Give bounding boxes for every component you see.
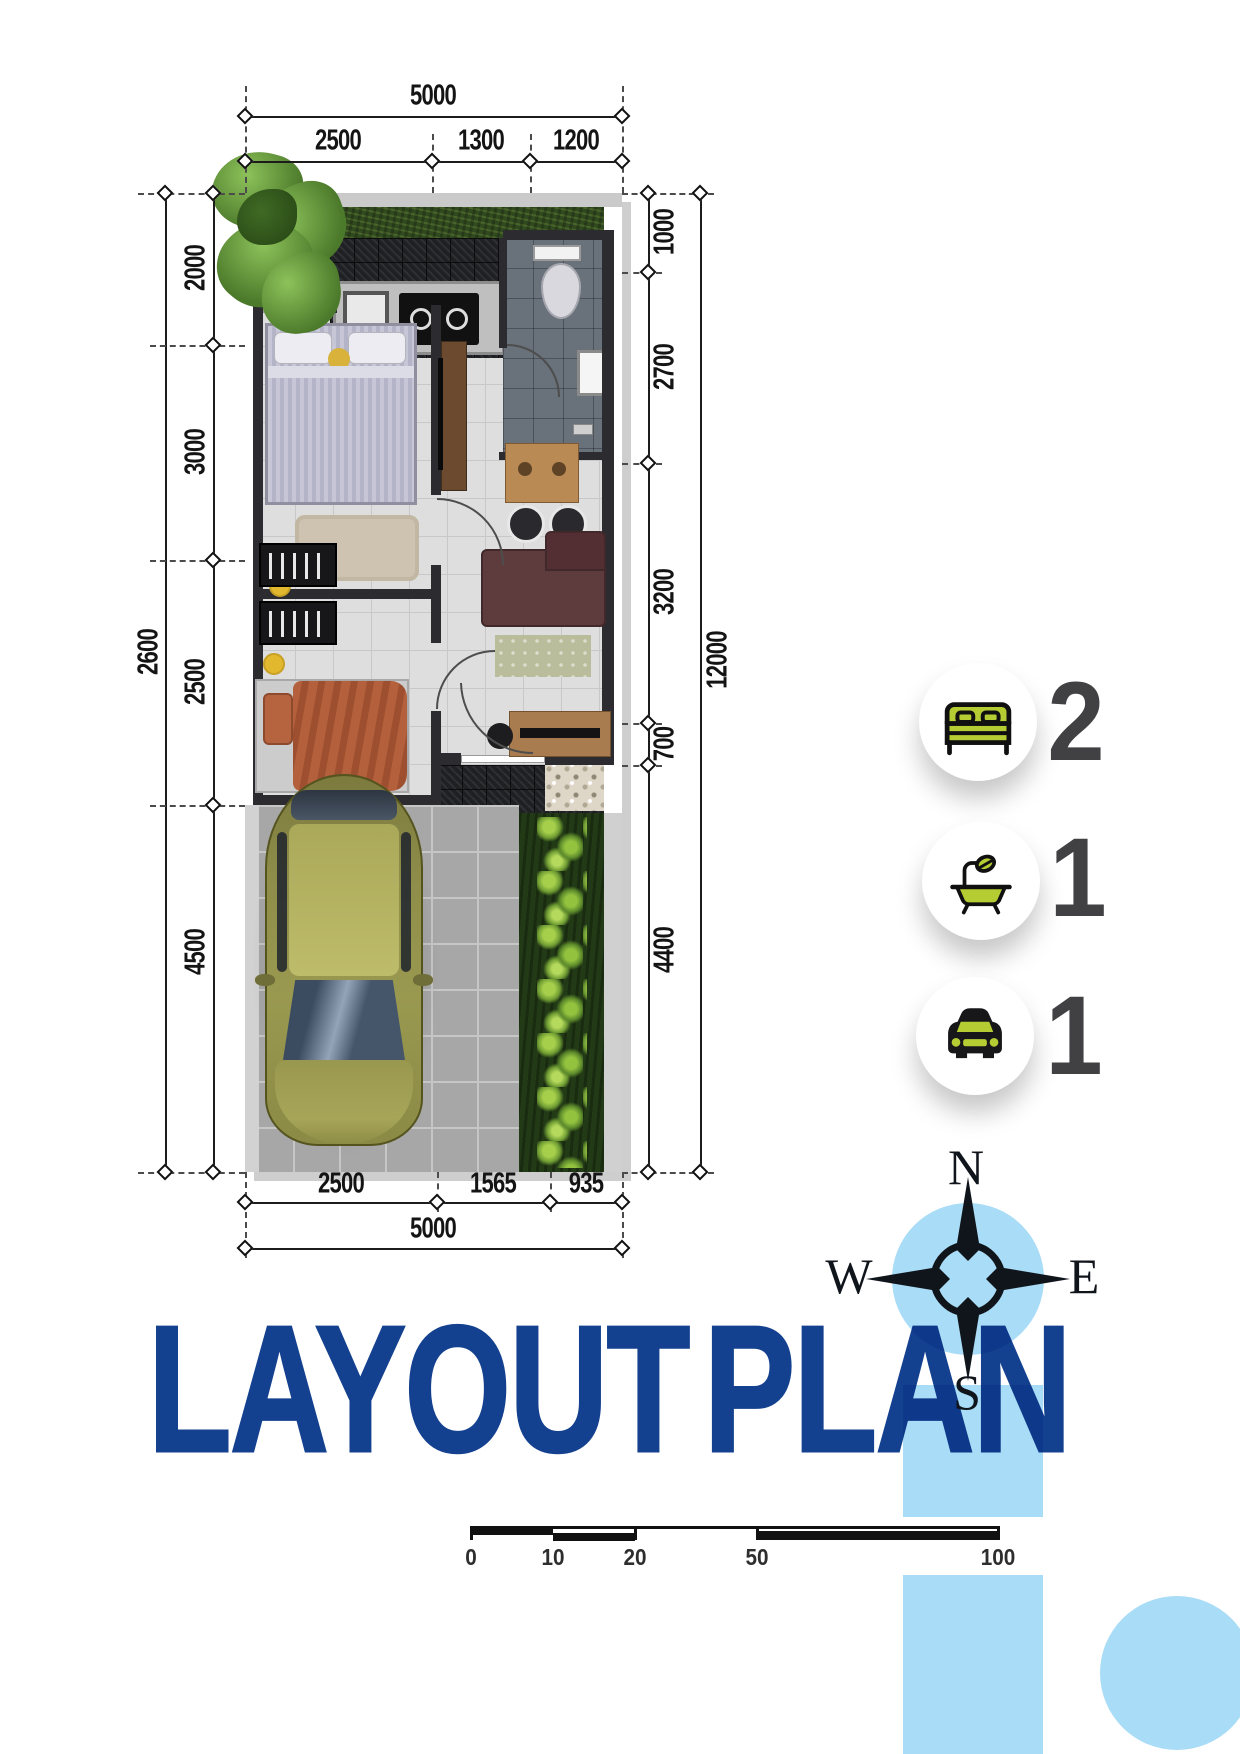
- dim-marker: [614, 1240, 631, 1257]
- dim-line: [648, 193, 650, 1172]
- car-windshield: [283, 980, 405, 1060]
- dim-top-seg2: 1300: [458, 125, 504, 158]
- dim-marker: [205, 797, 222, 814]
- dim-right-seg4: 700: [649, 727, 682, 761]
- dim-top-seg1: 2500: [315, 125, 361, 158]
- title-word-layout: LAYOUT: [148, 1300, 689, 1480]
- deco-circle-bottom-right: [1100, 1596, 1240, 1750]
- dim-right-outer: 12000: [702, 631, 735, 688]
- dim-marker: [237, 1240, 254, 1257]
- dim-bottom-seg2: 1565: [470, 1168, 516, 1201]
- scale-label-50: 50: [745, 1544, 768, 1571]
- car-top-view: [253, 768, 437, 1158]
- dim-marker: [692, 1164, 709, 1181]
- dim-line: [245, 116, 622, 118]
- dim-marker: [640, 1164, 657, 1181]
- dim-marker: [614, 108, 631, 125]
- extension-line: [150, 345, 245, 347]
- legend-carports: [916, 977, 1034, 1095]
- scale-tick: [997, 1526, 1000, 1540]
- car-mirror-left: [255, 974, 275, 986]
- dim-marker: [237, 108, 254, 125]
- legend-bedrooms: [919, 663, 1037, 781]
- extension-line: [245, 86, 247, 193]
- dim-marker: [205, 552, 222, 569]
- floor-plan: [245, 193, 622, 1172]
- scale-bar: 0 10 20 50 100: [470, 1526, 1000, 1566]
- compass-west-label: W: [825, 1247, 872, 1305]
- dim-right-seg3: 3200: [649, 569, 682, 615]
- bath-icon: [945, 845, 1017, 917]
- scale-seg-2: [553, 1533, 635, 1541]
- dim-marker: [205, 1164, 222, 1181]
- dim-left-seg3: 2500: [180, 659, 213, 705]
- dim-left-outer: 2600: [133, 629, 166, 675]
- compass-south-label: S: [953, 1363, 981, 1421]
- scale-tick: [470, 1526, 473, 1540]
- dim-marker: [640, 185, 657, 202]
- car-rear-glass: [291, 790, 397, 820]
- extension-line: [150, 805, 245, 807]
- compass-east-label: E: [1069, 1247, 1100, 1305]
- dim-marker: [157, 1164, 174, 1181]
- dim-marker: [542, 1194, 559, 1211]
- dim-marker: [614, 1194, 631, 1211]
- extension-line: [138, 1172, 245, 1174]
- dim-bottom-seg1: 2500: [318, 1168, 364, 1201]
- dim-top-total: 5000: [410, 80, 456, 113]
- layout-plan-page: 5000 2500 1300 1200 2600 2000 3000 2500 …: [0, 0, 1240, 1754]
- bed-icon: [940, 684, 1016, 760]
- dim-marker: [157, 185, 174, 202]
- scale-seg-1: [470, 1528, 553, 1535]
- legend-bathrooms: [922, 822, 1040, 940]
- car-icon: [937, 998, 1013, 1074]
- bathroom-count: 1: [1049, 822, 1106, 934]
- dim-marker: [640, 455, 657, 472]
- dim-marker: [692, 185, 709, 202]
- scale-label-10: 10: [541, 1544, 564, 1571]
- dim-marker: [424, 153, 441, 170]
- compass-rose-icon: [858, 1169, 1078, 1389]
- car-side-window-left: [277, 832, 287, 972]
- bedroom-count: 2: [1047, 666, 1104, 778]
- dim-marker: [614, 153, 631, 170]
- dim-marker: [640, 264, 657, 281]
- scale-seg-3: [757, 1531, 1000, 1540]
- dim-marker: [429, 1194, 446, 1211]
- dim-line: [245, 1248, 622, 1250]
- dim-right-seg5: 4400: [649, 927, 682, 973]
- scale-label-0: 0: [465, 1544, 477, 1571]
- extension-line: [150, 560, 245, 562]
- car-side-window-right: [401, 832, 411, 972]
- scale-label-100: 100: [981, 1544, 1016, 1571]
- dim-right-seg2: 2700: [649, 344, 682, 390]
- dim-left-seg2: 3000: [180, 429, 213, 475]
- dim-line: [165, 193, 167, 1172]
- tree: [203, 145, 353, 345]
- scale-tick: [756, 1526, 759, 1540]
- carport-count: 1: [1045, 980, 1102, 1092]
- extension-line: [622, 86, 624, 193]
- dim-marker: [237, 1194, 254, 1211]
- deco-bar-bottom: [903, 1575, 1043, 1754]
- dim-top-seg3: 1200: [553, 125, 599, 158]
- dim-bottom-total: 5000: [410, 1213, 456, 1246]
- compass-north-label: N: [948, 1138, 984, 1196]
- dim-right-seg1: 1000: [649, 209, 682, 255]
- dim-left-seg4: 4500: [180, 929, 213, 975]
- extension-line: [138, 193, 245, 195]
- scale-tick: [634, 1526, 637, 1540]
- scale-label-20: 20: [623, 1544, 646, 1571]
- car-roof: [289, 824, 399, 976]
- car-mirror-right: [413, 974, 433, 986]
- dim-bottom-seg3: 935: [569, 1168, 603, 1201]
- dim-marker: [522, 153, 539, 170]
- dim-left-seg1: 2000: [180, 245, 213, 291]
